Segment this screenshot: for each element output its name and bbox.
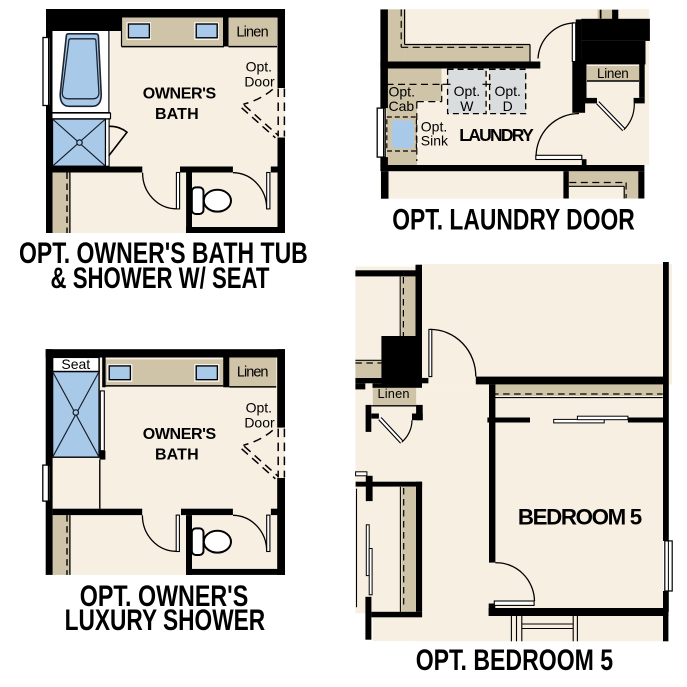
svg-text:W: W xyxy=(460,98,474,114)
svg-text:Door: Door xyxy=(244,415,275,431)
svg-text:D: D xyxy=(503,98,513,114)
svg-text:Linen: Linen xyxy=(597,66,629,81)
svg-text:Linen: Linen xyxy=(377,386,409,401)
svg-text:Opt.: Opt. xyxy=(494,83,520,99)
svg-text:Opt.: Opt. xyxy=(246,59,272,75)
svg-text:BATH: BATH xyxy=(155,447,199,464)
svg-text:OWNER'S: OWNER'S xyxy=(143,426,217,443)
svg-text:Seat: Seat xyxy=(61,356,90,372)
svg-text:LUXURY SHOWER: LUXURY SHOWER xyxy=(65,604,266,637)
svg-text:Opt.: Opt. xyxy=(454,83,480,99)
svg-text:Door: Door xyxy=(244,74,275,90)
svg-text:Sink: Sink xyxy=(421,133,449,149)
svg-text:OPT. BEDROOM 5: OPT. BEDROOM 5 xyxy=(416,644,613,677)
svg-text:BEDROOM 5: BEDROOM 5 xyxy=(518,504,642,529)
svg-text:Linen: Linen xyxy=(237,365,269,381)
svg-text:OPT. LAUNDRY DOOR: OPT. LAUNDRY DOOR xyxy=(392,204,635,237)
svg-text:Cab: Cab xyxy=(389,98,415,114)
svg-text:BATH: BATH xyxy=(155,106,199,123)
svg-text:Opt.: Opt. xyxy=(246,400,272,416)
svg-text:& SHOWER W/ SEAT: & SHOWER W/ SEAT xyxy=(51,262,270,295)
svg-text:LAUNDRY: LAUNDRY xyxy=(459,125,534,145)
svg-text:OWNER'S: OWNER'S xyxy=(143,86,217,103)
svg-text:Linen: Linen xyxy=(236,25,268,41)
